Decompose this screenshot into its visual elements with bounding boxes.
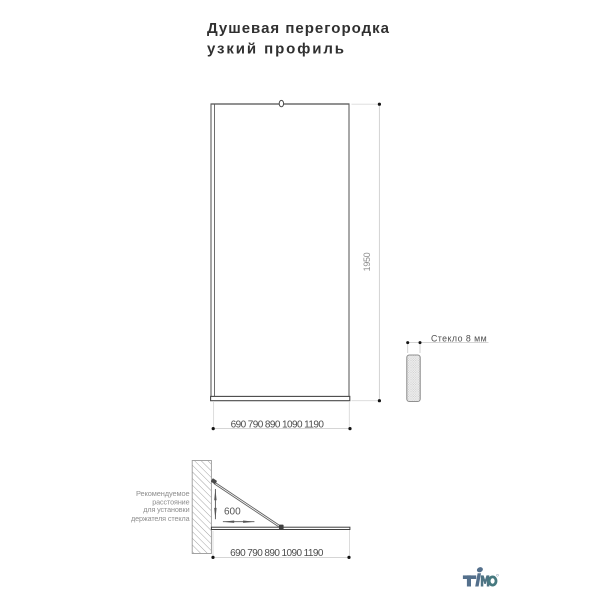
svg-text:1950: 1950 [362, 252, 372, 271]
svg-text:Душевая перегородка: Душевая перегородка [207, 20, 390, 37]
svg-text:690 790 890 1090 1190: 690 790 890 1090 1190 [231, 419, 325, 430]
svg-text:держателя стекла: держателя стекла [131, 514, 190, 523]
svg-text:для установки: для установки [143, 505, 189, 514]
svg-text:Стекло 8 мм: Стекло 8 мм [431, 334, 487, 344]
svg-text:690 790 890 1090 1190: 690 790 890 1090 1190 [230, 548, 324, 559]
svg-text:узкий профиль: узкий профиль [207, 41, 346, 58]
svg-text:600: 600 [224, 507, 241, 518]
